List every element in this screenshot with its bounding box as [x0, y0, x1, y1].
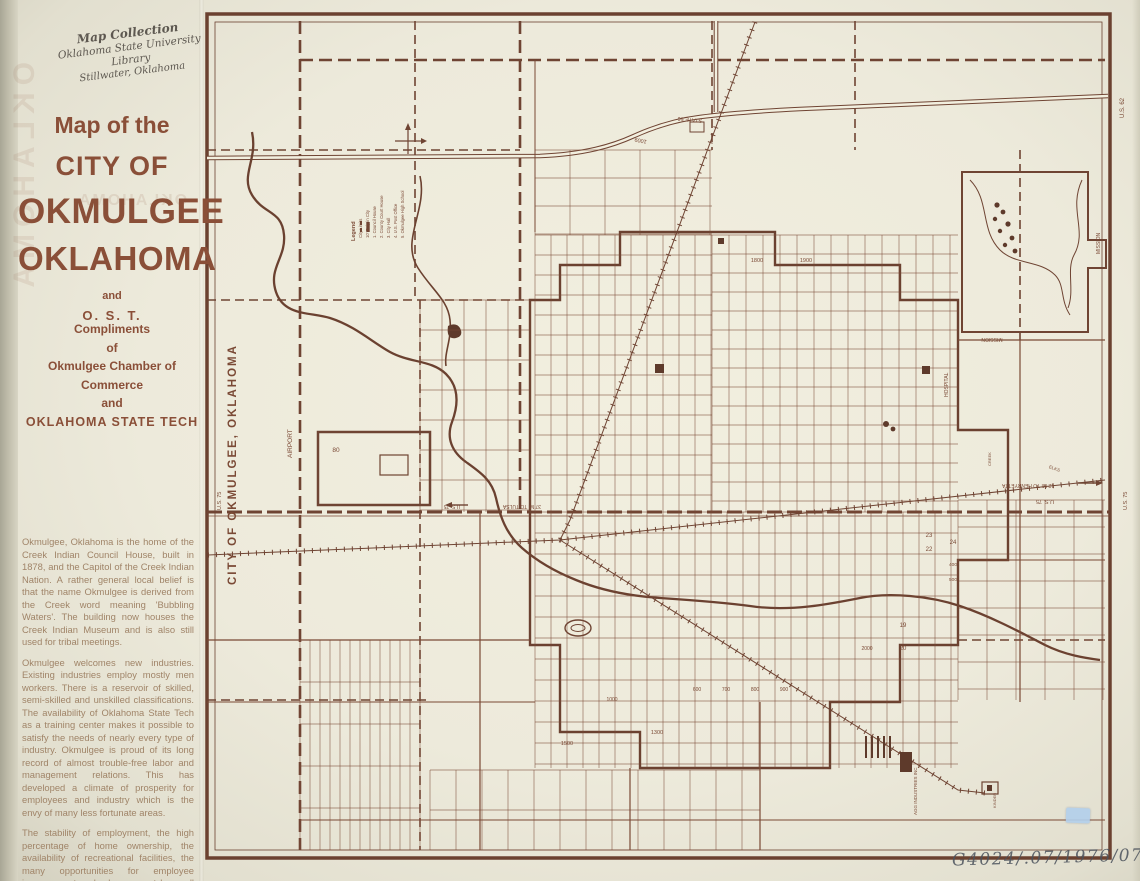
legend-title: Legend [351, 221, 357, 241]
block-number-900: 900 [780, 687, 789, 693]
post-office-block [718, 238, 724, 244]
map-labels: CITY OF OKMULGEE, OKLAHOMAAIRPORTU.S. 75… [217, 97, 1129, 815]
us75-right-margin-label: U.S. 75 [1123, 492, 1129, 510]
map-sheet: CITY OF OKMULGEE, OKLAHOMAAIRPORTU.S. 75… [0, 0, 1140, 881]
compliments-block: Compliments of Okmulgee Chamber of Comme… [18, 320, 206, 432]
block-number-1300: 1300 [651, 730, 663, 736]
city-limit-dashed-lines [207, 21, 1105, 850]
compliments-line-5: and [18, 394, 206, 413]
street-number-19: 19 [900, 623, 907, 629]
block-number-600: 600 [693, 687, 702, 693]
block-number-500: 500 [949, 577, 957, 583]
henryetta-distance-label: 12 MI TO HENRYETTA [1001, 482, 1054, 488]
small-lake [448, 324, 462, 338]
park-trees-2 [891, 427, 896, 432]
us75-east-west-road [207, 512, 1110, 516]
block-number-1000: 1000 [606, 697, 617, 703]
golf-course [962, 172, 1106, 332]
state56-highway [207, 21, 1108, 158]
block-number-700: 700 [722, 687, 731, 693]
street-number-23: 23 [926, 533, 933, 539]
block-number-1800: 1800 [751, 258, 763, 264]
industrial-stripes [866, 736, 890, 758]
us62-label: U.S. 62 [1120, 97, 1126, 118]
paragraph-industry: Okmulgee welcomes new industries. Existi… [22, 657, 194, 820]
council-house-block [655, 364, 664, 373]
compliments-line-1: Compliments [18, 320, 206, 339]
hospital-label: HOSPITAL [944, 372, 950, 397]
legend-item-city-hall: 3. City Hall [386, 218, 391, 238]
industrial-building [900, 752, 912, 772]
legend-item-post-office: 4. U.S. Post Office [393, 203, 398, 238]
compliments-line-6: OKLAHOMA STATE TECH [18, 413, 206, 432]
library-stamp: Map Collection Oklahoma State University… [41, 16, 218, 90]
route-1009-label: 1009 [634, 136, 647, 144]
kinder-label: KINDER [992, 793, 997, 808]
block-number-800: 800 [751, 687, 760, 693]
us75-road-label-west: U.S. 75 [443, 503, 460, 509]
title-city-of: CITY OF [18, 151, 206, 182]
block-number-1500: 1500 [561, 741, 573, 747]
block-number-1900: 1900 [800, 258, 812, 264]
title-and: and [18, 290, 206, 302]
creek-label: CREEK [987, 452, 992, 466]
hospital-block [922, 366, 930, 374]
legend-item-court-house: 2. County Court House [379, 195, 384, 238]
compliments-line-4: Commerce [18, 376, 206, 395]
legend-item-strip: 10' Strip in City [365, 209, 370, 238]
title-map-of-the: Map of the [18, 112, 206, 139]
mission-label-vertical: MISSION [1096, 232, 1102, 254]
legend-item-city-limits: City Limits [358, 219, 363, 238]
compliments-line-3: Okmulgee Chamber of [18, 357, 206, 376]
left-text-panel: OKLAHOMA OKLAHOMA Map Collection Oklahom… [18, 0, 206, 881]
street-number-20: 20 [900, 646, 907, 652]
street-number-22: 22 [926, 547, 933, 553]
block-number-400: 400 [949, 562, 957, 568]
title-oklahoma: OKLAHOMA [18, 240, 206, 278]
river-tributary [412, 176, 450, 366]
paragraph-employment: The stability of employment, the high pe… [22, 827, 194, 881]
paragraph-history: Okmulgee, Oklahoma is the home of the Cr… [22, 536, 194, 649]
title-okmulgee: OKMULGEE [18, 192, 206, 232]
elks-label: ELKS [1048, 464, 1061, 473]
city-boundary [530, 232, 1008, 768]
map-side-label: CITY OF OKMULGEE, OKLAHOMA [227, 344, 239, 585]
tulsa-distance-label: 37 MI TO TULSA [502, 503, 541, 509]
agg-industries-label: AGG INDUSTRIES INC [913, 767, 918, 815]
us75-road-label-east: U.S. 75 [1036, 498, 1054, 504]
map-inner-border [215, 22, 1102, 850]
legend-item-council-house: 1. Council House [372, 205, 377, 238]
airport-field [318, 432, 430, 505]
mission-label-horizontal: MISSION [981, 336, 1003, 342]
legend-item-high-school: 5. Okmulgee High School [400, 190, 405, 238]
park-trees [883, 421, 889, 427]
street-number-24: 24 [950, 540, 957, 546]
runway-number: 80 [332, 447, 340, 454]
compliments-line-2: of [18, 339, 206, 358]
airport-label: AIRPORT [287, 429, 294, 458]
us75-left-margin-label: U.S. 75 [217, 492, 223, 510]
description-paragraphs: Okmulgee, Oklahoma is the home of the Cr… [22, 536, 194, 881]
fairground-oval [565, 620, 591, 636]
blue-sticker [1066, 808, 1091, 824]
kinder-building-core [987, 785, 992, 791]
block-number-2000: 2000 [861, 646, 872, 652]
railroads [208, 22, 1105, 793]
title-block: Map of the CITY OF OKMULGEE OKLAHOMA and… [18, 112, 206, 323]
